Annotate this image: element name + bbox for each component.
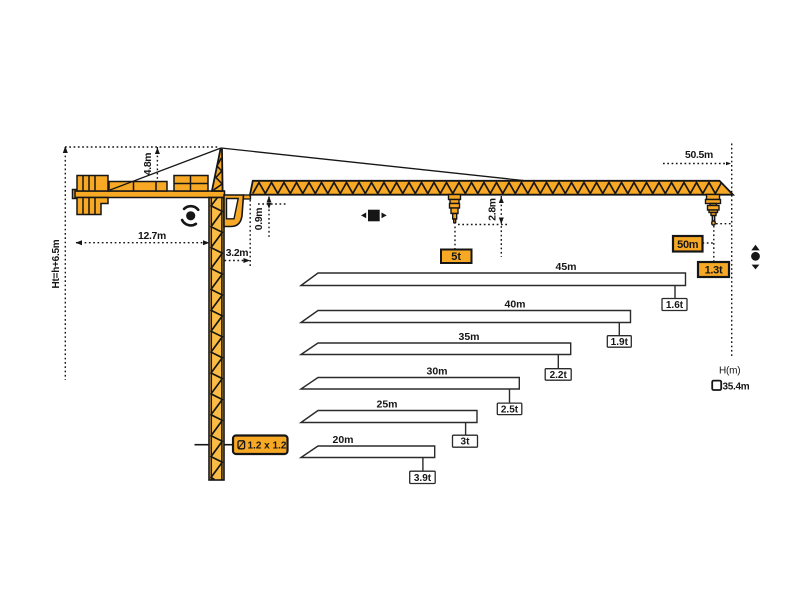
svg-text:1.3t: 1.3t [705,265,723,277]
svg-text:50m: 50m [677,239,699,251]
svg-text:Ht=h+6.5m: Ht=h+6.5m [51,239,62,288]
svg-text:2.2t: 2.2t [550,370,568,381]
svg-text:1.2 x 1.2: 1.2 x 1.2 [248,441,287,452]
svg-text:4.8m: 4.8m [143,153,154,176]
svg-text:3.2m: 3.2m [226,248,249,259]
svg-text:3t: 3t [461,437,471,448]
svg-text:1.9t: 1.9t [611,337,629,348]
svg-text:1.6t: 1.6t [666,300,684,311]
svg-text:40m: 40m [504,299,525,311]
svg-text:45m: 45m [555,261,576,273]
svg-text:25m: 25m [376,399,397,411]
svg-text:5t: 5t [451,251,461,263]
svg-text:35.4m: 35.4m [723,382,750,393]
svg-text:2.8m: 2.8m [488,198,499,221]
svg-text:30m: 30m [426,366,447,378]
svg-text:50.5m: 50.5m [685,150,713,161]
svg-text:2.5t: 2.5t [501,404,519,415]
svg-text:0.9m: 0.9m [254,208,265,231]
svg-text:H(m): H(m) [719,366,740,377]
svg-text:12.7m: 12.7m [138,231,166,242]
svg-text:20m: 20m [332,434,353,446]
svg-text:3.9t: 3.9t [414,473,432,484]
svg-text:35m: 35m [458,331,479,343]
